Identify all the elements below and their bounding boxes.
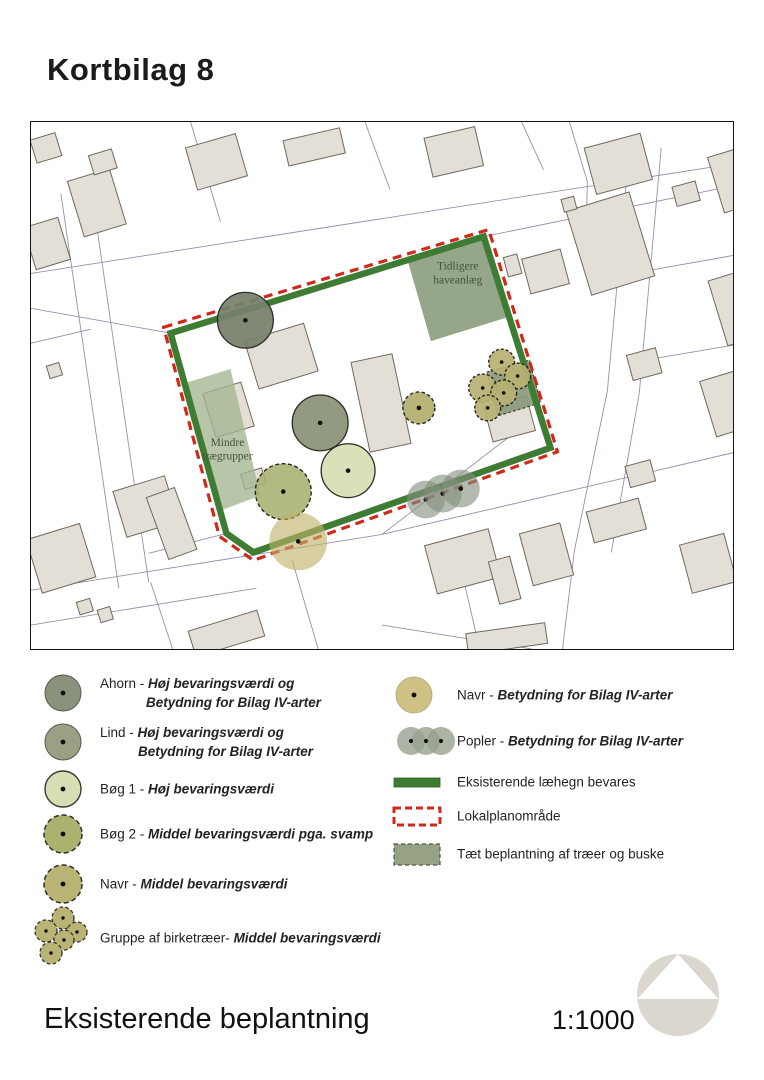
parcel-line: [151, 582, 173, 649]
building: [67, 169, 126, 237]
tree-center-dot: [346, 468, 351, 473]
legend-item-label: Popler - Betydning for Bilag IV-arter: [457, 732, 683, 751]
building: [700, 367, 733, 437]
tree-center-dot: [417, 406, 422, 411]
tree-center-dot: [486, 406, 490, 410]
building: [708, 145, 733, 213]
tree-center-dot: [243, 318, 248, 323]
building: [424, 127, 483, 177]
building: [46, 362, 62, 378]
building: [186, 134, 248, 190]
legend-symbol-b-g-1: [41, 767, 85, 811]
building: [88, 149, 117, 175]
building: [466, 623, 548, 649]
legend-item-label: Navr - Middel bevaringsværdi: [100, 875, 288, 894]
parcel-line: [292, 560, 318, 649]
building: [31, 524, 96, 594]
building: [584, 133, 652, 194]
building: [679, 533, 733, 593]
legend-item-label: Lokalplanområde: [457, 807, 561, 826]
building: [283, 128, 345, 166]
north-arrow-logo: [633, 950, 723, 1040]
legend-symbol-t-t-beplantning-af-tr-er-og-buske: [390, 840, 444, 869]
building: [522, 249, 570, 294]
building: [566, 192, 655, 295]
page-title: Kortbilag 8: [47, 52, 214, 88]
building: [586, 498, 646, 543]
building: [625, 460, 656, 488]
building: [519, 523, 573, 586]
parcel-line: [643, 255, 733, 271]
building: [31, 217, 71, 269]
parcel-line: [522, 122, 544, 170]
tree-center-dot: [481, 386, 485, 390]
tree-center-dot: [502, 391, 506, 395]
tree-center-dot: [458, 486, 463, 491]
building: [561, 196, 577, 212]
map-frame: TidligerehaveanlægMindretrægrupper: [30, 121, 734, 650]
building: [76, 598, 93, 614]
parcel-line: [31, 308, 171, 333]
footer-title: Eksisterende beplantning: [44, 1003, 370, 1036]
building: [188, 610, 265, 649]
legend-symbol-lokalplanomr-de: [390, 804, 444, 829]
legend-item-label: Bøg 2 - Middel bevaringsværdi pga. svamp: [100, 825, 373, 844]
legend-symbol-ahorn: [41, 671, 85, 715]
tree-center-dot: [500, 360, 504, 364]
legend-item-label: Eksisterende læhegn bevares: [457, 773, 636, 792]
legend-item-label: Navr - Betydning for Bilag IV-arter: [457, 686, 673, 705]
building: [351, 354, 411, 452]
legend-symbol-lind: [41, 720, 85, 764]
building: [672, 181, 700, 206]
scale-label: 1:1000: [552, 1005, 635, 1036]
legend-item-label: Ahorn - Høj bevaringsværdi ogBetydning f…: [100, 674, 321, 712]
legend-symbol-navr: [40, 861, 86, 907]
tree-center-dot: [318, 421, 323, 426]
tree-center-dot: [281, 489, 286, 494]
legend-symbol-gruppe-af-birketr-er: [32, 905, 94, 971]
legend-item-label: Gruppe af birketræer- Middel bevaringsvæ…: [100, 929, 381, 948]
legend-item-label: Bøg 1 - Høj bevaringsværdi: [100, 780, 274, 799]
tree-center-dot: [516, 374, 520, 378]
tree-center-dot: [296, 539, 301, 544]
building: [503, 254, 522, 277]
legend-symbol-eksisterende-l-hegn-bevares: [390, 774, 444, 791]
legend-symbol-navr: [392, 673, 436, 717]
building: [31, 133, 62, 163]
legend-symbol-b-g-2: [40, 811, 86, 857]
building: [708, 269, 733, 346]
parcel-line: [365, 122, 390, 190]
building: [488, 556, 521, 604]
parcel-line: [31, 588, 256, 625]
building: [626, 348, 662, 381]
building: [97, 607, 113, 623]
legend-item-label: Tæt beplantning af træer og buske: [457, 845, 664, 864]
site-map-svg: TidligerehaveanlægMindretrægrupper: [31, 122, 733, 649]
map-label: Tidligerehaveanlæg: [433, 260, 482, 286]
legend-item-label: Lind - Høj bevaringsværdi ogBetydning fo…: [100, 723, 313, 761]
legend-symbol-popler: [393, 722, 459, 760]
